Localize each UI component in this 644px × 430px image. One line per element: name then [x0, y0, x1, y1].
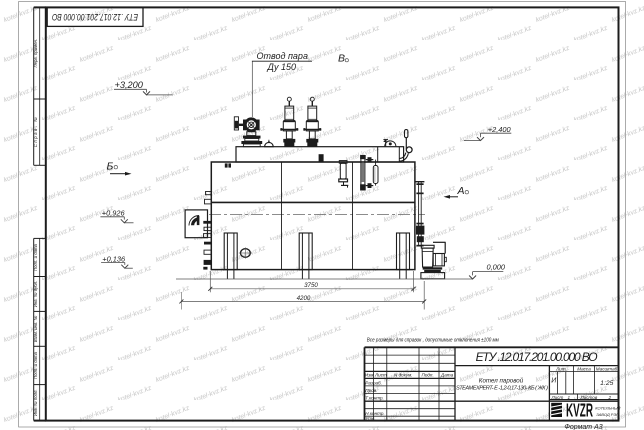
svg-text:3750: 3750	[304, 282, 318, 289]
svg-text:Масштаб: Масштаб	[596, 366, 618, 371]
svg-text:Формат А3: Формат А3	[564, 424, 602, 430]
svg-text:ЕТУ .12.017.201.00.000 ВО: ЕТУ .12.017.201.00.000 ВО	[476, 350, 598, 364]
svg-text:Перв. примен.: Перв. примен.	[33, 39, 38, 68]
svg-text:Отвод пара: Отвод пара	[257, 51, 308, 61]
svg-text:1:25: 1:25	[600, 380, 613, 387]
svg-text:2: 2	[608, 395, 612, 400]
svg-text:0,000: 0,000	[487, 263, 506, 272]
svg-text:В: В	[338, 52, 345, 64]
svg-text:Дата: Дата	[440, 373, 454, 378]
svg-text:KVZR: KVZR	[566, 399, 593, 420]
svg-text:Все размеры для справок , допу: Все размеры для справок , допустимые отк…	[367, 337, 499, 343]
svg-text:Инв. № подл.: Инв. № подл.	[33, 389, 38, 416]
svg-text:Взам. инв. №: Взам. инв. №	[33, 315, 38, 342]
svg-text:N докум.: N докум.	[394, 373, 413, 378]
svg-text:Подп.: Подп.	[422, 373, 434, 378]
svg-text:STEAMEXPERT- Е -1,2-0,17-130-: STEAMEXPERT- Е -1,2-0,17-130- КБ ( ЖК )	[456, 386, 548, 392]
svg-text:Инв. № дубл.: Инв. № дубл.	[33, 281, 38, 307]
svg-text:ЗАВОД РЭП: ЗАВОД РЭП	[596, 412, 619, 417]
svg-text:Лит.: Лит.	[555, 366, 567, 371]
svg-text:Лист: Лист	[374, 373, 387, 378]
svg-text:+3,200: +3,200	[115, 80, 144, 90]
svg-text:ЕТУ .12.017.201.00.000 ВО: ЕТУ .12.017.201.00.000 ВО	[52, 11, 138, 22]
svg-text:+0,926: +0,926	[102, 209, 126, 218]
svg-text:Подп. и дата: Подп. и дата	[33, 351, 38, 379]
svg-text:Б: Б	[107, 160, 114, 172]
svg-text:Ду 150: Ду 150	[267, 62, 296, 72]
svg-text:Котел паровой: Котел паровой	[479, 377, 524, 384]
svg-text:+2,400: +2,400	[488, 125, 512, 134]
svg-text:Изм.: Изм.	[365, 373, 375, 378]
svg-text:Т.контр.: Т.контр.	[365, 396, 384, 401]
svg-text:А: А	[457, 185, 465, 197]
svg-text:+0,136: +0,136	[102, 254, 126, 263]
svg-text:Пров.: Пров.	[365, 388, 377, 393]
svg-text:КОТЕЛЬНЫЙ: КОТЕЛЬНЫЙ	[595, 405, 620, 410]
svg-text:Лист: Лист	[551, 395, 564, 400]
svg-text:Утв.: Утв.	[365, 416, 375, 421]
svg-text:Разраб.: Разраб.	[365, 381, 382, 386]
svg-text:Подп. и дата: Подп. и дата	[33, 243, 38, 271]
svg-text:4200: 4200	[297, 295, 311, 302]
svg-text:Масса: Масса	[577, 366, 591, 371]
